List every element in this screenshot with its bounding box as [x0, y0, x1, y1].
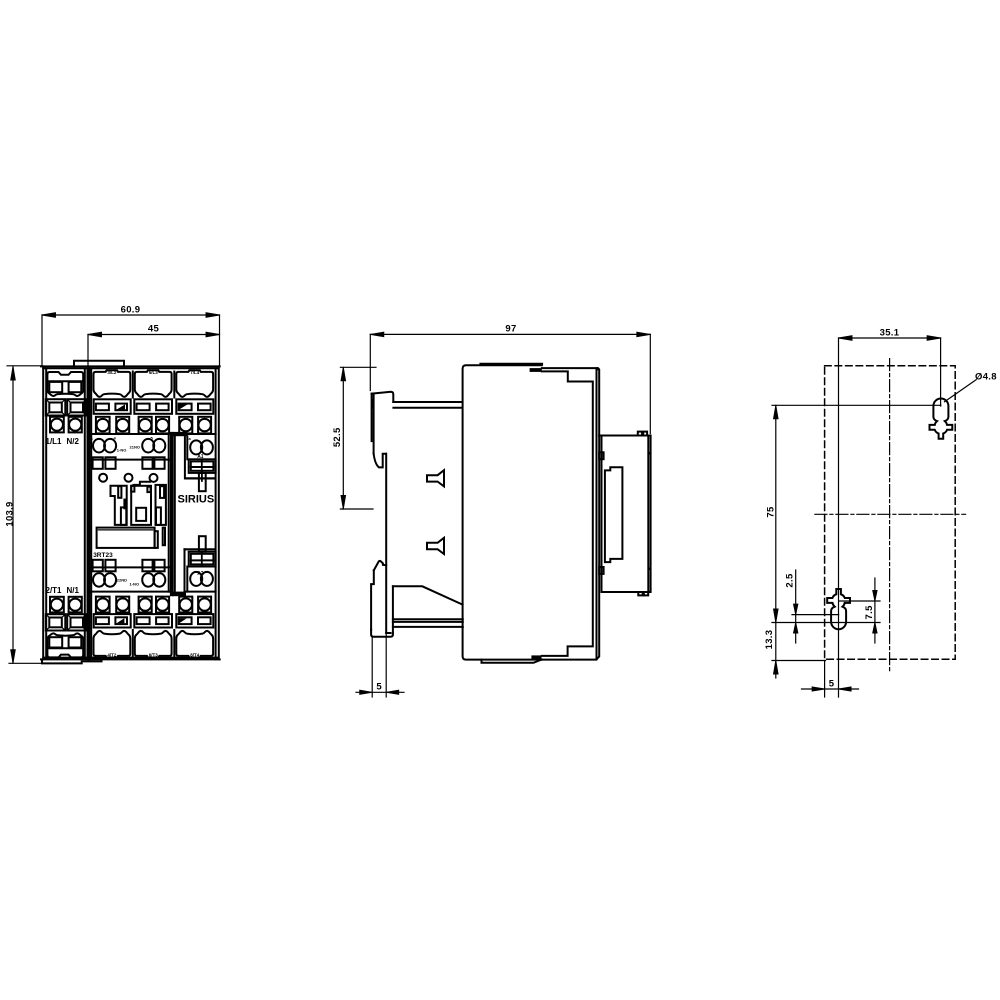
- svg-text:52.5: 52.5: [332, 427, 343, 447]
- svg-text:1-NO: 1-NO: [130, 582, 140, 587]
- svg-text:N/2: N/2: [67, 437, 80, 446]
- svg-text:22ND: 22ND: [117, 578, 127, 583]
- svg-text:4/T2: 4/T2: [107, 652, 117, 657]
- svg-text:21NO: 21NO: [130, 445, 140, 450]
- svg-text:3: 3: [91, 436, 94, 441]
- svg-text:3/L2: 3/L2: [107, 370, 117, 375]
- svg-text:35.1: 35.1: [880, 328, 900, 339]
- svg-text:4: 4: [114, 436, 117, 441]
- svg-text:2.5: 2.5: [785, 573, 796, 588]
- svg-text:97: 97: [505, 324, 516, 335]
- svg-text:N/1: N/1: [67, 586, 80, 595]
- svg-text:5: 5: [151, 436, 154, 441]
- svg-text:13.3: 13.3: [764, 630, 775, 650]
- svg-text:3RT23: 3RT23: [93, 552, 113, 559]
- svg-text:1/L1: 1/L1: [46, 437, 63, 446]
- svg-text:a: a: [189, 436, 192, 441]
- svg-text:5: 5: [829, 678, 835, 689]
- svg-text:1-NO: 1-NO: [117, 448, 127, 453]
- svg-text:7/L4: 7/L4: [190, 370, 200, 375]
- svg-text:60.9: 60.9: [121, 305, 141, 316]
- svg-text:5: 5: [376, 681, 382, 692]
- svg-text:2/T1: 2/T1: [46, 586, 63, 595]
- svg-text:SIRIUS: SIRIUS: [178, 494, 215, 506]
- svg-text:6/T3: 6/T3: [149, 652, 159, 657]
- svg-text:Ø4.8: Ø4.8: [975, 372, 997, 383]
- svg-text:8/T4: 8/T4: [190, 652, 200, 657]
- svg-text:75: 75: [765, 506, 776, 518]
- svg-text:5/L3: 5/L3: [149, 370, 159, 375]
- svg-text:45: 45: [148, 324, 160, 335]
- svg-text:103.9: 103.9: [5, 501, 16, 526]
- svg-text:7.5: 7.5: [864, 605, 875, 620]
